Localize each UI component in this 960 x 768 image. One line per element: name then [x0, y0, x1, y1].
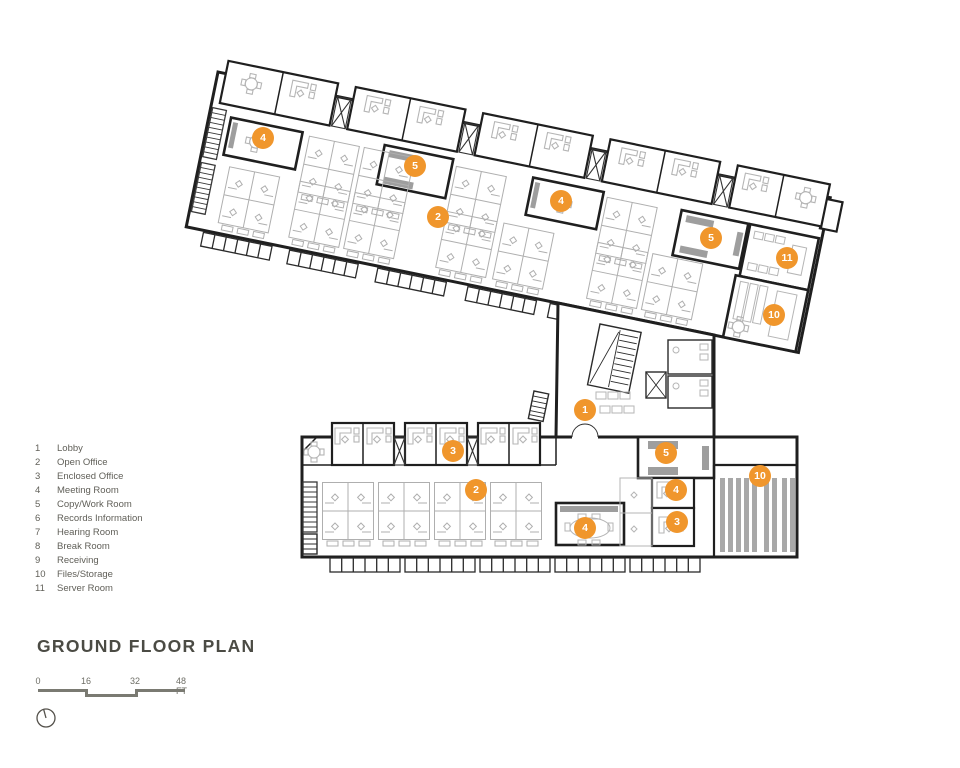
exterior-stair	[528, 391, 548, 421]
legend-item-number: 7	[35, 526, 57, 540]
legend-item: 2Open Office	[35, 456, 143, 470]
legend-item-number: 1	[35, 442, 57, 456]
entry-canopy-lower	[330, 558, 700, 572]
elevator	[646, 372, 666, 398]
legend-item: 4Meeting Room	[35, 484, 143, 498]
legend-item-number: 6	[35, 512, 57, 526]
legend-item-label: Lobby	[57, 442, 83, 456]
legend-item-label: Files/Storage	[57, 568, 113, 582]
legend-item: 1Lobby	[35, 442, 143, 456]
legend-item-number: 5	[35, 498, 57, 512]
legend-item: 7Hearing Room	[35, 526, 143, 540]
legend-item-number: 10	[35, 568, 57, 582]
lower-wing	[302, 423, 797, 572]
legend-item-label: Enclosed Office	[57, 470, 123, 484]
meeting-room-small	[652, 478, 694, 508]
legend-item-number: 9	[35, 554, 57, 568]
legend-item: 10Files/Storage	[35, 568, 143, 582]
legend-item-number: 11	[35, 582, 57, 596]
legend-item: 11Server Room	[35, 582, 143, 596]
legend-item-number: 3	[35, 470, 57, 484]
legend-item-label: Meeting Room	[57, 484, 119, 498]
legend-item-number: 2	[35, 456, 57, 470]
meeting-room-lower	[556, 503, 624, 545]
scale-bar-line	[37, 688, 189, 698]
floor-plan-page: 452451110135241043 1Lobby2Open Office3En…	[0, 0, 960, 768]
legend-item-label: Copy/Work Room	[57, 498, 132, 512]
legend-item-label: Server Room	[57, 582, 113, 596]
scale-label-0: 0	[35, 676, 40, 686]
north-arrow-icon	[35, 704, 59, 730]
legend-item: 8Break Room	[35, 540, 143, 554]
legend-item: 5Copy/Work Room	[35, 498, 143, 512]
enclosed-office-lower	[652, 508, 694, 546]
legend-item-number: 8	[35, 540, 57, 554]
copy-room-lower	[638, 437, 714, 478]
files-storage-room-upper	[723, 275, 808, 352]
legend-item-label: Records Information	[57, 512, 143, 526]
lower-wing-office-bays	[302, 423, 556, 465]
legend-item-label: Open Office	[57, 456, 108, 470]
legend-item: 6Records Information	[35, 512, 143, 526]
legend-item-number: 4	[35, 484, 57, 498]
legend-item-label: Receiving	[57, 554, 99, 568]
upper-wing	[183, 59, 846, 370]
restrooms	[668, 340, 712, 408]
legend-item-label: Break Room	[57, 540, 110, 554]
legend-item: 3Enclosed Office	[35, 470, 143, 484]
scale-label-32: 32	[130, 676, 140, 686]
legend-item: 9Receiving	[35, 554, 143, 568]
legend-item-label: Hearing Room	[57, 526, 118, 540]
scale-label-16: 16	[81, 676, 91, 686]
legend: 1Lobby2Open Office3Enclosed Office4Meeti…	[35, 442, 143, 596]
page-title: GROUND FLOOR PLAN	[37, 636, 255, 657]
scale-bar: 0 16 32 48 FT	[37, 676, 197, 702]
